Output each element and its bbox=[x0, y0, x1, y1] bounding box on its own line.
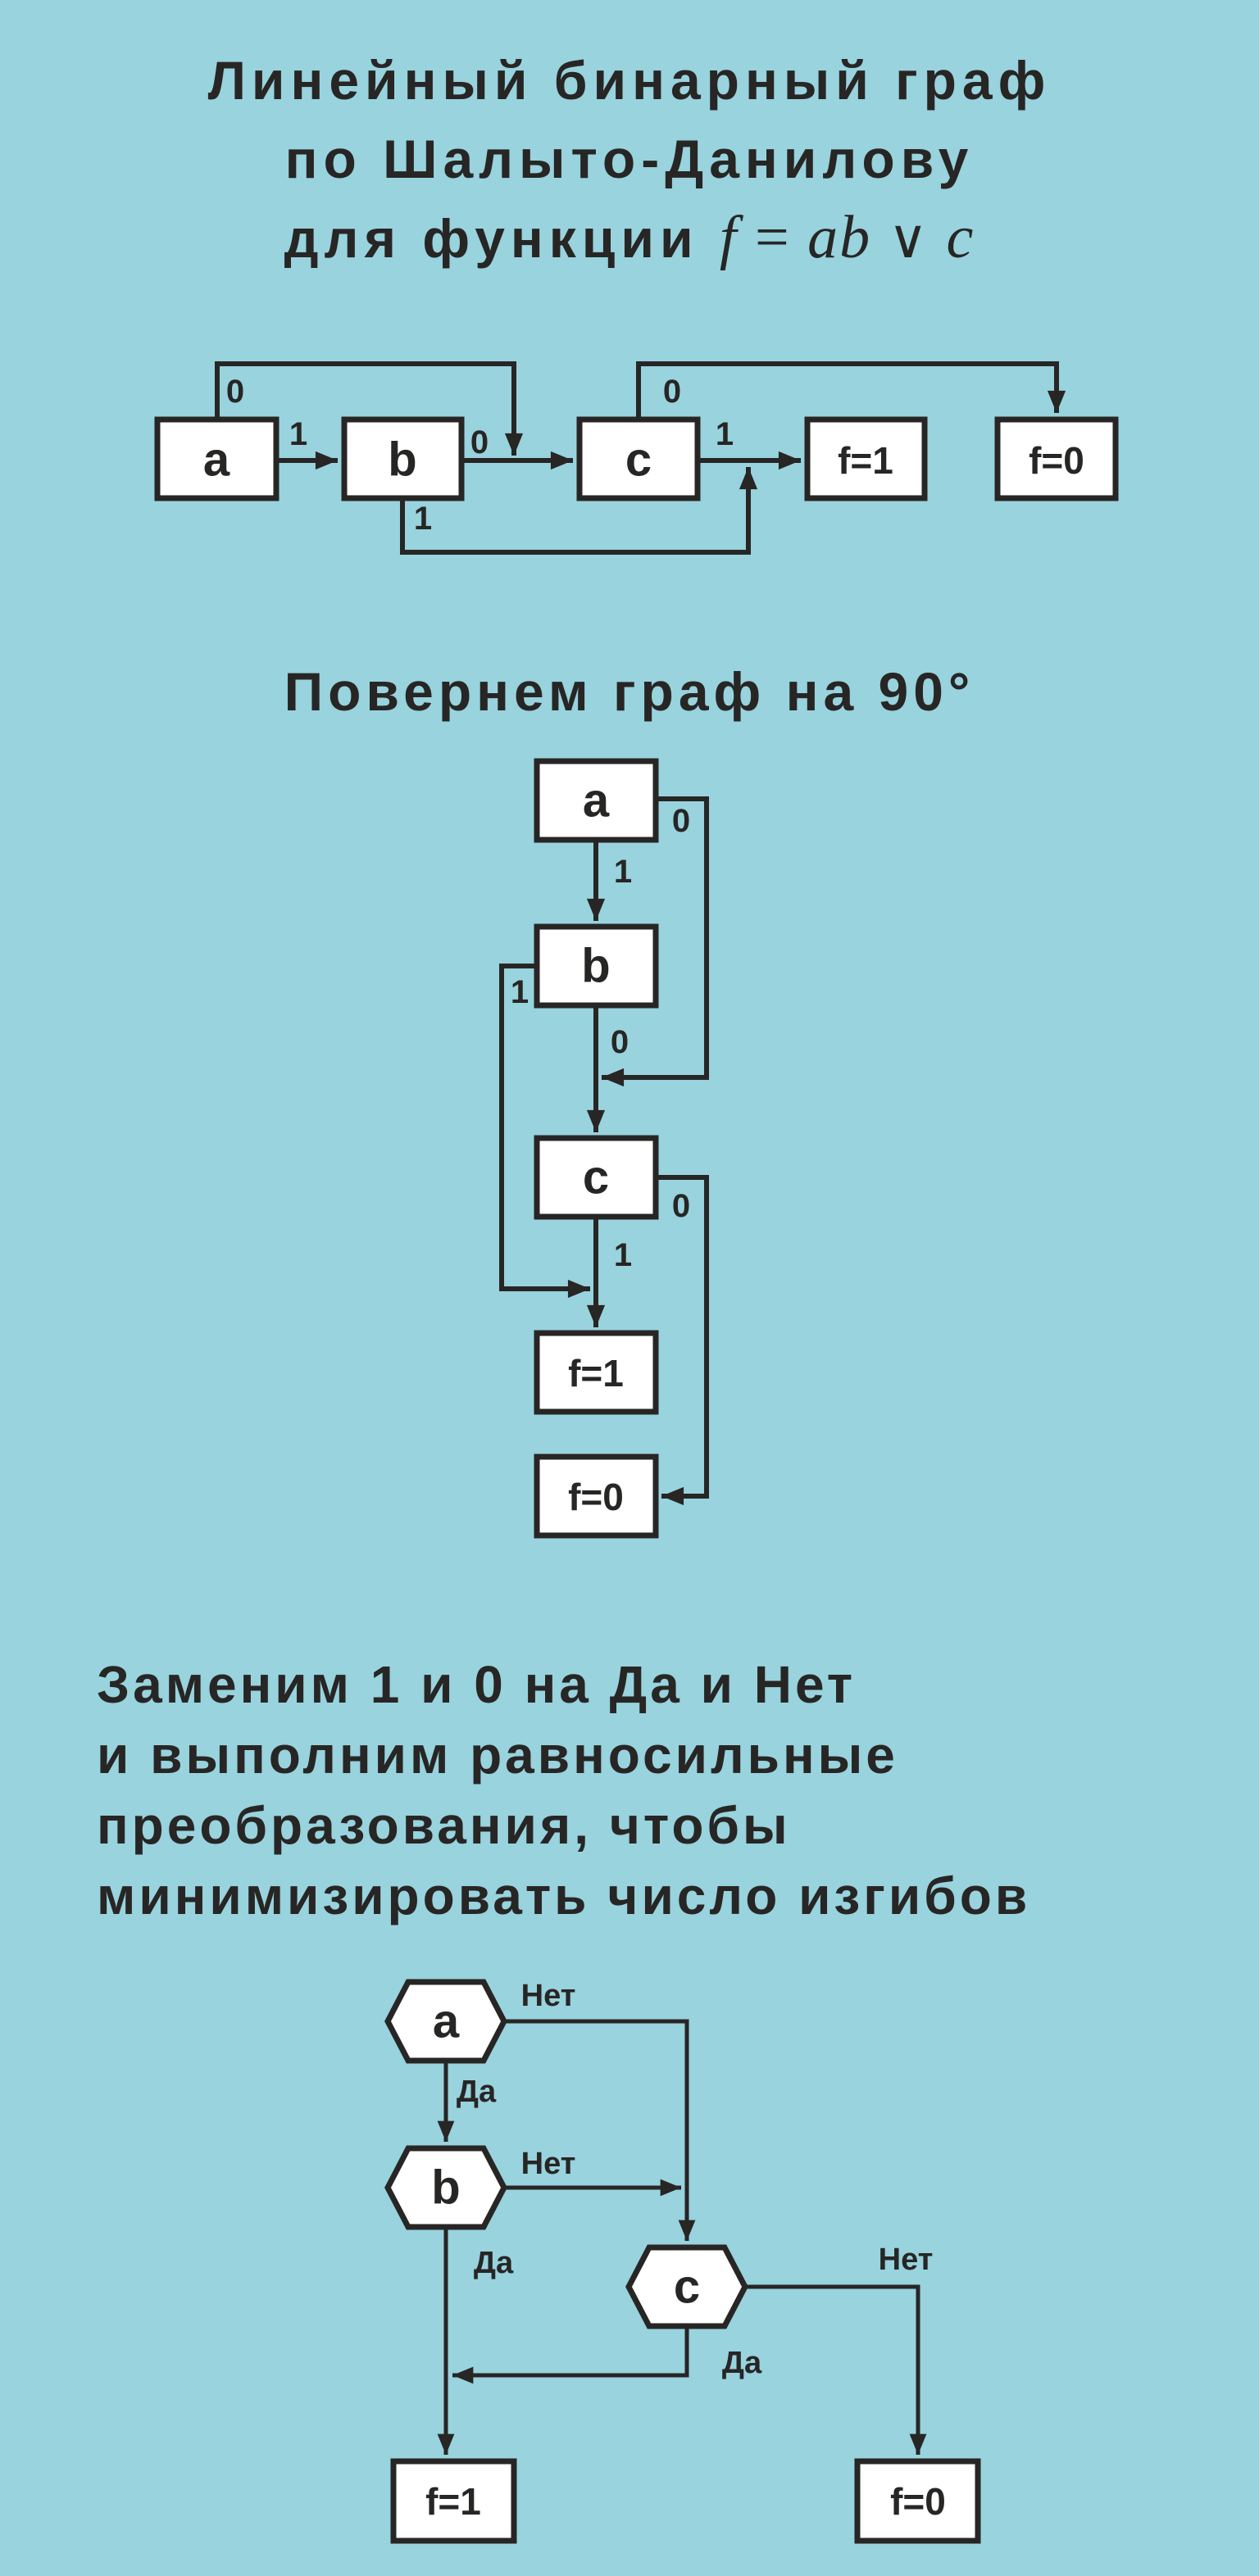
fc1-label-a-1: 1 bbox=[289, 416, 307, 452]
fc3-edge-c-yes bbox=[452, 2326, 687, 2375]
fc2-node-a-label: a bbox=[583, 774, 610, 828]
fc2-label-b-0: 0 bbox=[611, 1024, 629, 1060]
fc1-label-b-0: 0 bbox=[470, 424, 489, 460]
fc3-edge-c-no bbox=[745, 2287, 918, 2455]
fc3-node-f0-label: f=0 bbox=[890, 2480, 946, 2523]
fc2-label-c-1: 1 bbox=[614, 1237, 632, 1273]
flowchart-yes-no: a b c f=1 f=0 Нет Да Нет Да Нет Да bbox=[0, 1966, 1259, 2576]
fc3-node-b-label: b bbox=[431, 2161, 460, 2215]
fc3-edge-a-no bbox=[504, 2021, 687, 2241]
fc3-label-c-no: Нет bbox=[879, 2243, 934, 2277]
title-line-1: Линейный бинарный граф bbox=[0, 41, 1259, 120]
formula: f = ab ∨ c bbox=[720, 204, 975, 271]
fc3-label-b-no: Нет bbox=[521, 2147, 576, 2181]
fc1-node-f0-label: f=0 bbox=[1029, 439, 1084, 482]
formula-f: f bbox=[720, 204, 739, 271]
fc2-label-a-1: 1 bbox=[614, 854, 632, 890]
fc1-label-c-0: 0 bbox=[663, 374, 681, 410]
fc3-label-a-yes: Да bbox=[457, 2075, 497, 2109]
title-line-3: для функции f = ab ∨ c bbox=[0, 198, 1259, 279]
replace-heading-line-4: минимизировать число изгибов bbox=[97, 1861, 1244, 1931]
fc2-edge-c-0 bbox=[656, 1177, 707, 1496]
replace-heading-line-1: Заменим 1 и 0 на Да и Нет bbox=[97, 1649, 1244, 1720]
formula-ab: ab bbox=[807, 204, 871, 271]
replace-heading-line-2: и выполним равносильные bbox=[97, 1720, 1244, 1790]
fc3-node-a-label: a bbox=[433, 1995, 460, 2048]
fc3-node-f1-label: f=1 bbox=[425, 2480, 481, 2523]
formula-or-symbol: ∨ bbox=[889, 207, 929, 270]
fc2-label-a-0: 0 bbox=[672, 803, 690, 839]
page: Линейный бинарный граф по Шалыто-Данилов… bbox=[0, 0, 1259, 2576]
replace-heading-line-3: преобразования, чтобы bbox=[97, 1790, 1244, 1861]
flowchart-vertical: a b c f=1 f=0 1 0 0 1 1 0 bbox=[0, 737, 1259, 1557]
fc1-node-b-label: b bbox=[388, 433, 416, 487]
rotate-heading: Повернем граф на 90° bbox=[0, 659, 1259, 724]
fc3-label-b-yes: Да bbox=[474, 2246, 514, 2280]
page-title: Линейный бинарный граф по Шалыто-Данилов… bbox=[0, 41, 1259, 279]
fc1-node-a-label: a bbox=[203, 433, 230, 487]
fc1-node-f1-label: f=1 bbox=[838, 439, 893, 482]
fc1-label-c-1: 1 bbox=[716, 416, 734, 452]
fc3-label-a-no: Нет bbox=[521, 1979, 576, 2013]
fc2-node-b-label: b bbox=[581, 940, 610, 993]
fc3-node-c-label: c bbox=[674, 2261, 700, 2314]
fc2-edge-b-1 bbox=[502, 966, 590, 1289]
fc1-label-a-0: 0 bbox=[226, 374, 244, 410]
fc1-label-b-1: 1 bbox=[414, 501, 432, 537]
fc1-node-c-label: c bbox=[625, 433, 652, 487]
title-line-3-text: для функции bbox=[284, 208, 699, 269]
fc2-label-b-1: 1 bbox=[511, 974, 529, 1010]
fc2-node-f1-label: f=1 bbox=[568, 1352, 624, 1395]
fc2-node-f0-label: f=0 bbox=[568, 1476, 624, 1518]
fc3-label-c-yes: Да bbox=[722, 2346, 762, 2380]
flowchart-horizontal: a b c f=1 f=0 0 1 0 1 0 1 bbox=[0, 344, 1259, 590]
formula-c: c bbox=[946, 204, 975, 271]
replace-heading: Заменим 1 и 0 на Да и Нет и выполним рав… bbox=[97, 1649, 1244, 1931]
formula-equals: = bbox=[755, 204, 791, 271]
fc2-node-c-label: c bbox=[583, 1151, 609, 1204]
fc1-edge-c-0 bbox=[639, 364, 1057, 420]
fc2-label-c-0: 0 bbox=[672, 1188, 690, 1224]
title-line-2: по Шалыто-Данилову bbox=[0, 120, 1259, 198]
